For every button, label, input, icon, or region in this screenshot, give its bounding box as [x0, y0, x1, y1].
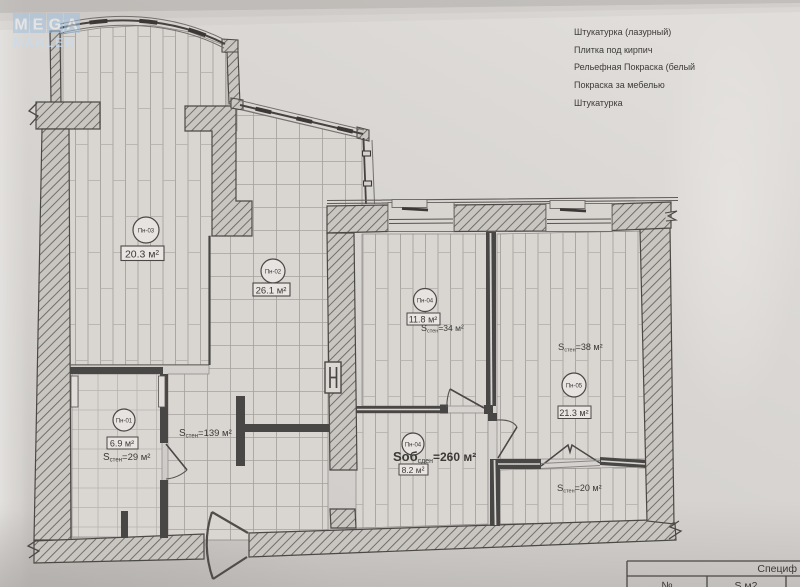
svg-text:Пн-03: Пн-03: [138, 229, 155, 235]
svg-text:№: №: [661, 580, 672, 587]
svg-text:MAKLER: MAKLER: [13, 36, 75, 50]
svg-text:M: M: [14, 17, 27, 34]
svg-text:Специф: Специф: [757, 563, 797, 575]
svg-text:Пн-04: Пн-04: [417, 299, 434, 305]
svg-text:G: G: [49, 17, 61, 34]
svg-text:Пн-01: Пн-01: [116, 419, 133, 425]
svg-text:20.3 м²: 20.3 м²: [125, 249, 160, 261]
svg-text:Штукатурка: Штукатурка: [574, 98, 623, 108]
svg-text:Покраска за мебелью: Покраска за мебелью: [574, 80, 665, 90]
svg-text:S,м2: S,м2: [735, 580, 758, 587]
svg-text:Плитка под кирпич: Плитка под кирпич: [574, 45, 653, 55]
svg-text:Пн-05: Пн-05: [566, 384, 583, 390]
svg-text:6.9 м²: 6.9 м²: [110, 439, 134, 449]
svg-text:Пн-02: Пн-02: [265, 270, 282, 276]
svg-text:21.3 м²: 21.3 м²: [559, 408, 588, 418]
svg-text:26.1 м²: 26.1 м²: [256, 286, 287, 297]
svg-text:E: E: [33, 17, 44, 34]
svg-text:Рельефная Покраска (белый: Рельефная Покраска (белый: [574, 62, 695, 72]
svg-text:Пн-04: Пн-04: [405, 443, 422, 449]
svg-text:Sобсден=260 м²: Sобсден=260 м²: [393, 449, 476, 465]
svg-text:A: A: [66, 17, 78, 34]
svg-text:8.2 м²: 8.2 м²: [402, 465, 425, 475]
svg-text:Штукатурка (лазурный): Штукатурка (лазурный): [574, 27, 671, 37]
